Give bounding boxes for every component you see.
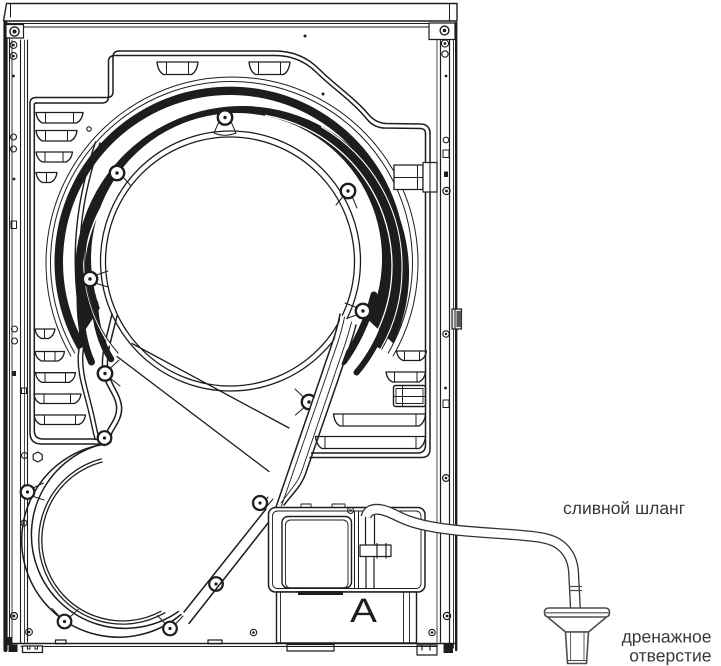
svg-text:отверстие: отверстие — [629, 646, 711, 666]
svg-text:A: A — [350, 592, 377, 630]
svg-text:сливной шланг: сливной шланг — [563, 498, 685, 518]
svg-text:дренажное: дренажное — [622, 627, 712, 647]
